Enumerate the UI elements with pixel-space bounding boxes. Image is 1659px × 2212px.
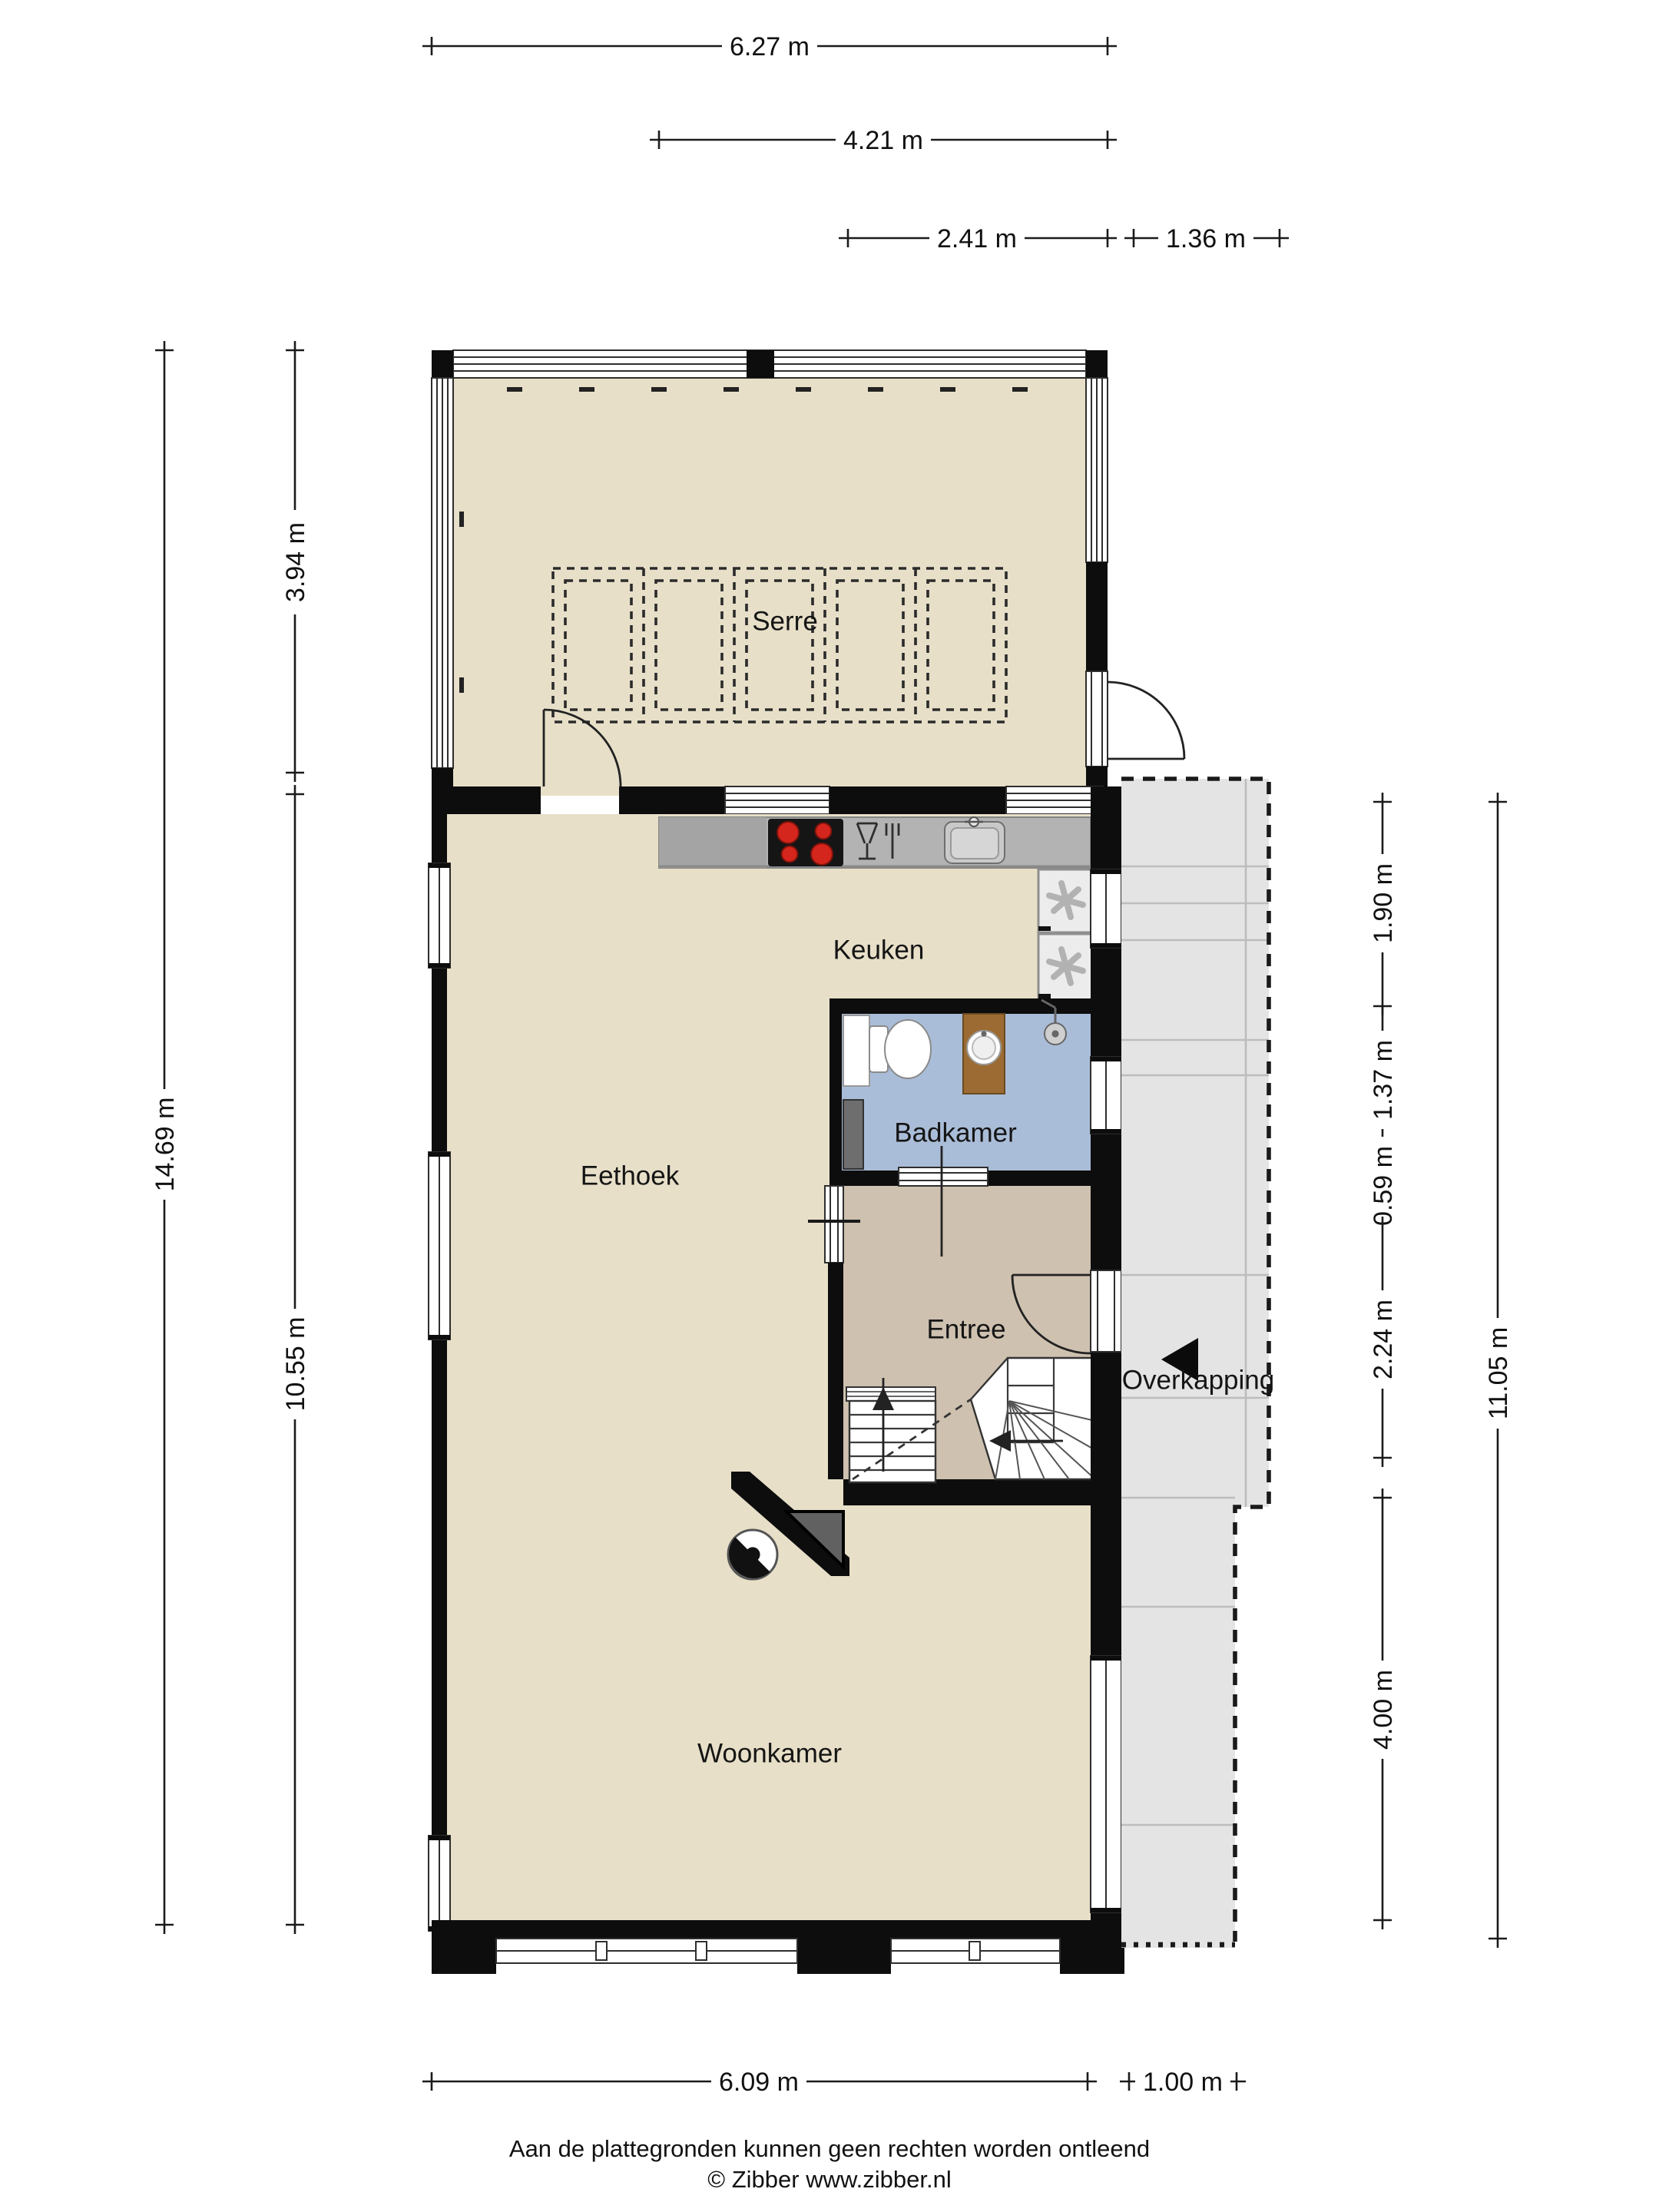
dimensions-left: 14.69 m 3.94 m 10.55 m [149,341,310,1934]
label-eethoek: Eethoek [581,1161,680,1190]
window-left-3 [429,1836,450,1931]
dim-label: 4.21 m [843,126,923,155]
kitchen-counter [659,817,1091,868]
window-left-2 [429,1152,450,1339]
dim-11-05: 11.05 m [1482,793,1513,1948]
dim-4-21: 4.21 m [650,124,1117,155]
dim-label: 3.94 m [281,522,310,602]
dimensions-bottom: 6.09 m 1.00 m [422,2066,1246,2097]
dim-6-27: 6.27 m [422,31,1117,61]
dim-label: 6.27 m [730,32,810,61]
footer-disclaimer: Aan de plattegronden kunnen geen rechten… [509,2135,1150,2162]
toilet-icon [869,1020,931,1078]
dim-14-69: 14.69 m [149,341,180,1934]
window-left-1 [429,863,450,968]
label-entree: Entree [926,1314,1005,1344]
duct [843,1100,863,1169]
label-badkamer: Badkamer [894,1118,1017,1147]
dim-label: 1.36 m [1166,224,1246,253]
smoke-detector-icon [728,1530,777,1579]
wall-bottom [432,1920,1124,1974]
serre-exterior-door [1086,671,1108,767]
dim-label: 2.24 m [1369,1300,1398,1379]
window-woonkamer-bottom-1 [496,1939,797,1963]
label-serre: Serre [752,606,818,636]
dim-label: 4.00 m [1369,1670,1398,1750]
dim-label: 6.09 m [719,2068,799,2097]
dimensions-top: 6.27 m 4.21 m 2.41 m 1.36 m [422,31,1289,253]
interior-window [825,1186,843,1263]
label-woonkamer: Woonkamer [697,1738,842,1768]
dim-label: 11.05 m [1484,1327,1513,1419]
dim-label: 1.00 m [1143,2068,1223,2097]
label-overkapping: Overkapping [1122,1365,1274,1395]
footer-credit: © Zibber www.zibber.nl [707,2166,951,2193]
badkamer-door [899,1167,988,1186]
dim-4-00: 4.00 m [1367,1488,1398,1929]
dim-label: 2.41 m [937,224,1017,253]
dim-label: 14.69 m [151,1098,180,1192]
dimensions-right: 1.90 m 1.37 m 0.59 m 2.24 m [1367,793,1513,1948]
window-badkamer [1091,1057,1121,1134]
fridge-freezer [1038,869,1094,1000]
area-overkapping [1121,779,1269,1948]
wall-left [429,814,450,1939]
serre-door-swing-arc [1108,682,1184,759]
window-woonkamer-right [1091,1656,1121,1912]
dim-2-41: 2.41 m [839,223,1117,253]
dim-label: 0.59 m [1369,1146,1398,1226]
dim-6-09: 6.09 m [422,2066,1097,2097]
shower-partition [843,1015,869,1086]
dim-3-94: 3.94 m [280,341,310,782]
dim-2-24: 2.24 m [1367,1217,1398,1467]
dim-label: 1.90 m [1369,863,1398,943]
dim-1-00: 1.00 m [1120,2066,1246,2097]
sink-icon [945,817,1005,863]
window-kitchen [1091,869,1121,948]
label-keuken: Keuken [833,935,925,965]
dim-1-36: 1.36 m [1124,223,1289,253]
window-woonkamer-bottom-2 [891,1939,1060,1963]
footer: Aan de plattegronden kunnen geen rechten… [509,2135,1150,2193]
dim-label: 1.37 m [1369,1040,1398,1120]
floorplan-svg: 6.27 m 4.21 m 2.41 m 1.36 m 14. [0,0,1659,2212]
floorplan-page: 6.27 m 4.21 m 2.41 m 1.36 m 14. [0,0,1659,2212]
stove-icon [768,819,843,866]
washbasin-icon [963,1014,1005,1094]
dim-label: 10.55 m [281,1317,310,1412]
dim-1-90: 1.90 m [1367,793,1398,1015]
dim-10-55: 10.55 m [280,785,310,1934]
